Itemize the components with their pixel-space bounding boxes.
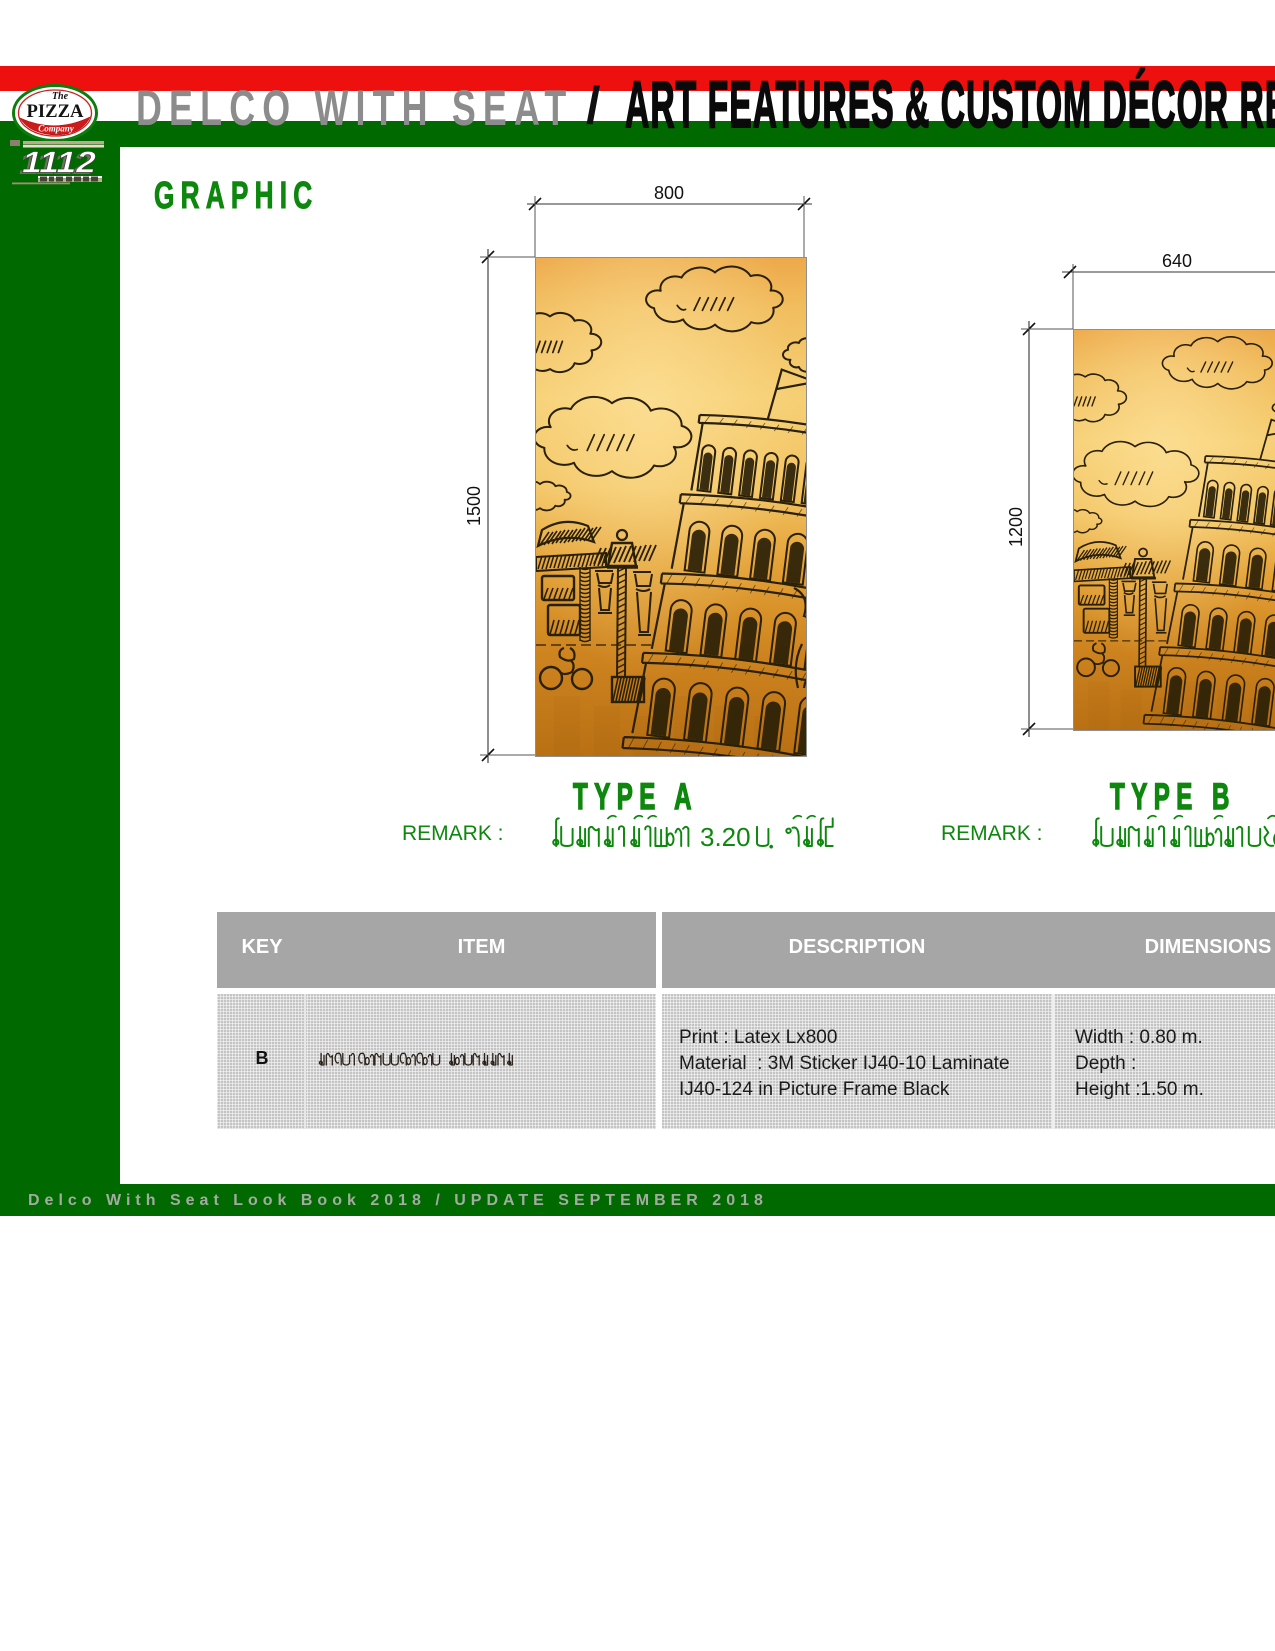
svg-text:3.20: 3.20 bbox=[700, 822, 751, 852]
svg-text:1500: 1500 bbox=[464, 486, 484, 526]
svg-text:640: 640 bbox=[1162, 251, 1192, 271]
svg-text:1200: 1200 bbox=[1006, 507, 1026, 547]
svg-text:800: 800 bbox=[654, 183, 684, 203]
